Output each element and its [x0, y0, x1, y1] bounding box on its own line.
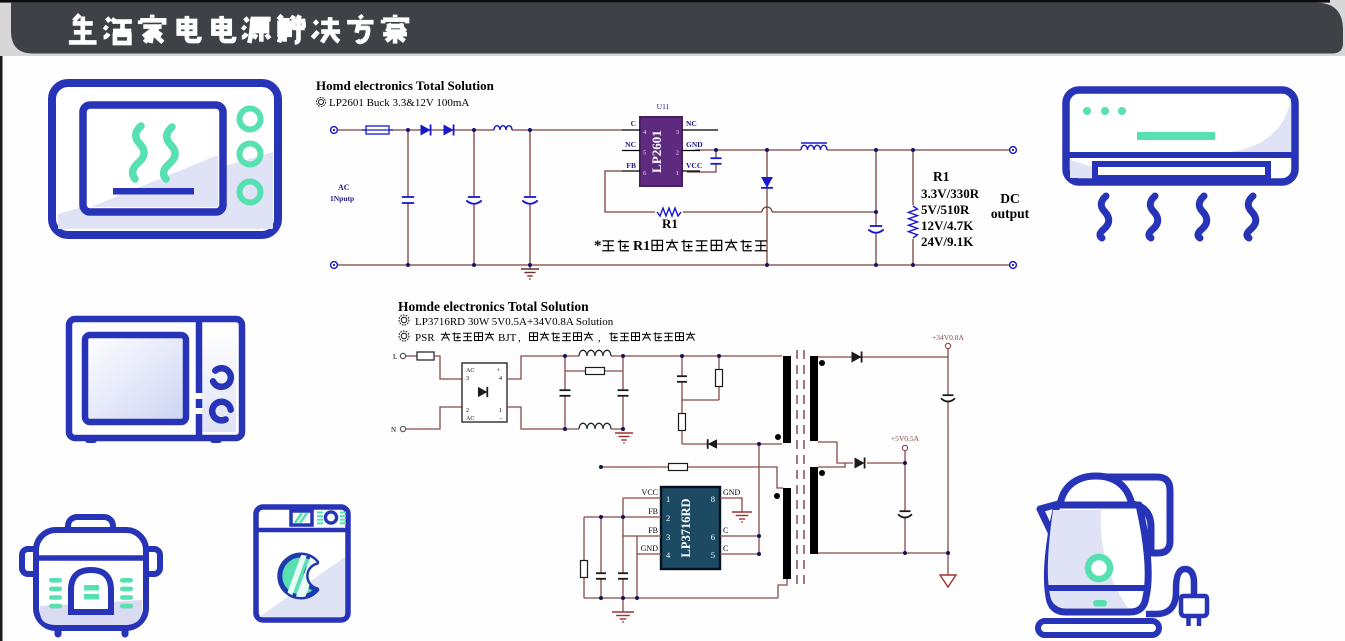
svg-text:8: 8 [711, 494, 715, 504]
svg-text:*: * [594, 238, 602, 254]
svg-text:N: N [391, 426, 396, 434]
svg-text:5V/510R: 5V/510R [921, 202, 970, 217]
svg-text:NC: NC [686, 119, 697, 128]
svg-text:6: 6 [711, 532, 715, 542]
svg-text:5: 5 [643, 150, 646, 157]
svg-text:C: C [723, 526, 728, 535]
svg-text:3.3V/330R: 3.3V/330R [921, 186, 980, 201]
svg-text:R1: R1 [933, 169, 950, 184]
svg-text:LP3716RD 30W 5V0.5A+34V0.8A So: LP3716RD 30W 5V0.5A+34V0.8A Solution [415, 316, 614, 328]
svg-text:1: 1 [666, 494, 670, 504]
svg-text:5: 5 [711, 550, 715, 560]
svg-text:GND: GND [723, 488, 741, 497]
svg-text:2: 2 [466, 408, 469, 414]
svg-text:LP2601 Buck 3.3&12V 100mA: LP2601 Buck 3.3&12V 100mA [329, 97, 469, 109]
svg-text:AC: AC [466, 416, 474, 422]
svg-text:1Nputp: 1Nputp [330, 194, 354, 203]
svg-text:-: - [500, 416, 502, 422]
svg-text:VCC: VCC [642, 488, 658, 497]
svg-text:2: 2 [666, 513, 670, 523]
svg-text:NC: NC [625, 140, 636, 149]
svg-text:BJT: BJT [498, 332, 517, 344]
svg-text:1: 1 [499, 408, 502, 414]
svg-text:DC: DC [1000, 191, 1020, 206]
svg-text:VCC: VCC [686, 161, 702, 170]
svg-text:2: 2 [676, 150, 679, 157]
svg-text:PSR: PSR [415, 332, 435, 344]
svg-text:GND: GND [686, 140, 703, 149]
svg-text:FB: FB [648, 507, 658, 516]
svg-text:4: 4 [499, 376, 502, 382]
svg-text:LP3716RD: LP3716RD [679, 498, 693, 557]
svg-text:3: 3 [666, 532, 670, 542]
svg-text:1: 1 [676, 170, 679, 177]
svg-text:L: L [393, 353, 397, 361]
svg-text:3: 3 [676, 129, 679, 136]
svg-text:C: C [631, 119, 636, 128]
svg-text:12V/4.7K: 12V/4.7K [921, 218, 974, 233]
svg-text:LP2601: LP2601 [649, 130, 664, 173]
svg-text:output: output [991, 206, 1030, 221]
svg-text:+34V0.8A: +34V0.8A [932, 333, 965, 342]
svg-text:U11: U11 [657, 102, 670, 111]
svg-text:FB: FB [626, 161, 636, 170]
svg-text:24V/9.1K: 24V/9.1K [921, 234, 974, 249]
svg-text:AC: AC [466, 368, 474, 374]
svg-text:AC: AC [338, 183, 350, 192]
svg-text:Homde electronics Total Solut: Homde electronics Total Solution [398, 299, 589, 314]
svg-text:R1: R1 [633, 239, 650, 254]
svg-text:R1: R1 [662, 216, 678, 231]
svg-text:C: C [723, 544, 728, 553]
svg-text:Homd electronics Total Soluti: Homd electronics Total Solution [316, 78, 495, 93]
svg-text:GND: GND [641, 544, 659, 553]
svg-text:FB: FB [648, 526, 658, 535]
svg-text:+5V0.5A: +5V0.5A [891, 434, 920, 443]
svg-text:,: , [518, 332, 521, 344]
svg-text:,: , [598, 332, 601, 344]
svg-text:3: 3 [466, 376, 469, 382]
